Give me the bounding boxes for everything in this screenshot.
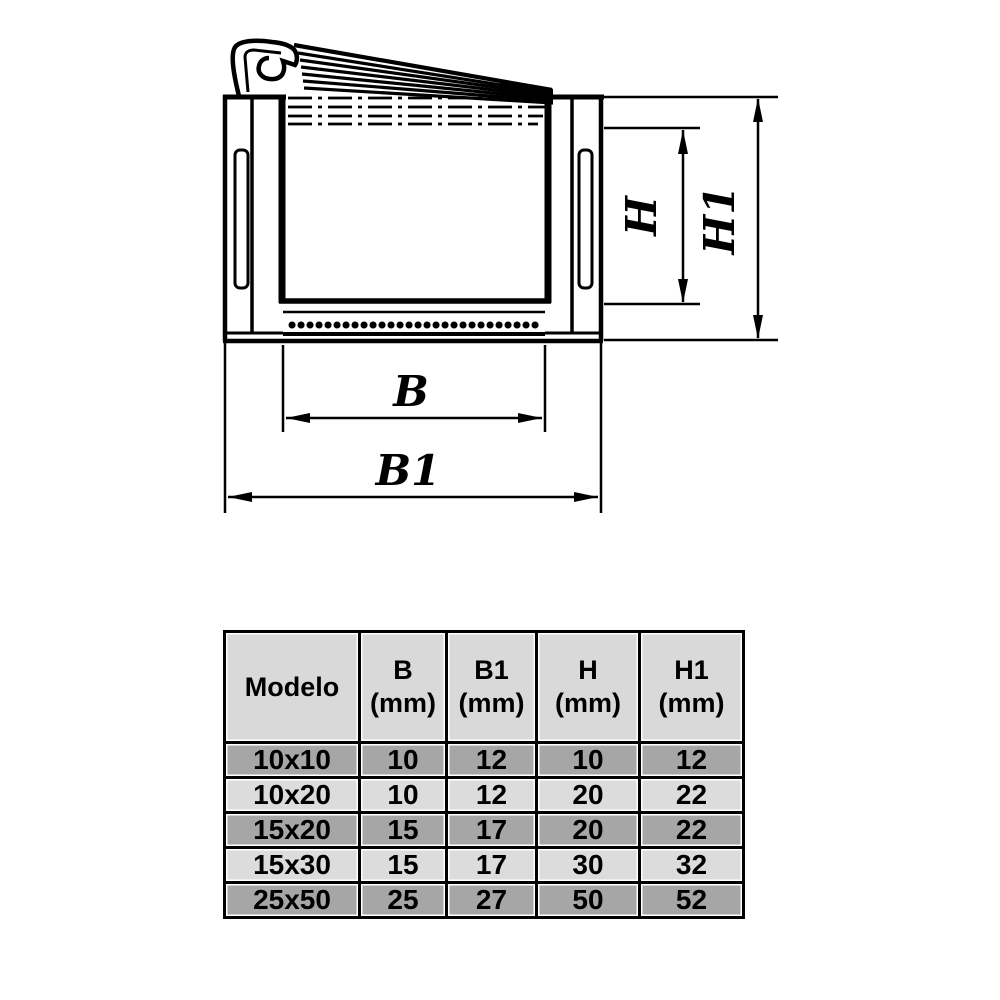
column-header-h: H(mm) [537,632,640,743]
lid-hook-shape [233,41,297,96]
lid-open-fan-lines [294,45,553,103]
bottom-base [223,301,603,341]
cell-h1: 12 [640,743,744,778]
cell-b: 25 [360,883,447,918]
dim-label-b1: B1 [375,446,441,495]
cell-h1: 22 [640,813,744,848]
cell-h1: 32 [640,848,744,883]
dim-label-b: B [392,367,429,416]
table-row: 15x30 15 17 30 32 [225,848,744,883]
cell-h: 30 [537,848,640,883]
dim-label-h1: H1 [695,186,744,256]
cell-b: 10 [360,778,447,813]
column-header-modelo: Modelo [225,632,360,743]
left-wall-slot [235,150,248,288]
table-row: 10x20 10 12 20 22 [225,778,744,813]
cell-modelo: 15x30 [225,848,360,883]
dimensions-table: Modelo B(mm) B1(mm) H(mm) H1(mm) 10x10 1… [223,630,745,919]
cell-b1: 17 [447,848,537,883]
cell-modelo: 25x50 [225,883,360,918]
table-row: 10x10 10 12 10 12 [225,743,744,778]
table-header-row: Modelo B(mm) B1(mm) H(mm) H1(mm) [225,632,744,743]
cell-b: 15 [360,848,447,883]
column-header-b: B(mm) [360,632,447,743]
dim-label-h: H [617,195,666,237]
column-header-h1: H1(mm) [640,632,744,743]
cell-h1: 22 [640,778,744,813]
cell-h: 50 [537,883,640,918]
cell-h1: 52 [640,883,744,918]
right-wall-slot [579,150,592,288]
table-row: 15x20 15 17 20 22 [225,813,744,848]
cell-b1: 17 [447,813,537,848]
cell-b1: 12 [447,778,537,813]
left-wall [223,95,286,341]
cell-modelo: 10x20 [225,778,360,813]
hidden-lid-lines [288,98,545,124]
cell-b1: 27 [447,883,537,918]
cell-h: 20 [537,778,640,813]
cell-b1: 12 [447,743,537,778]
cell-modelo: 10x10 [225,743,360,778]
cell-b: 10 [360,743,447,778]
catalog-page: { "diagram": { "labels": { "b": "B", "b1… [0,0,1000,1000]
cell-modelo: 15x20 [225,813,360,848]
right-wall [545,95,604,341]
table-row: 25x50 25 27 50 52 [225,883,744,918]
cell-h: 20 [537,813,640,848]
cell-h: 10 [537,743,640,778]
cell-b: 15 [360,813,447,848]
column-header-b1: B1(mm) [447,632,537,743]
